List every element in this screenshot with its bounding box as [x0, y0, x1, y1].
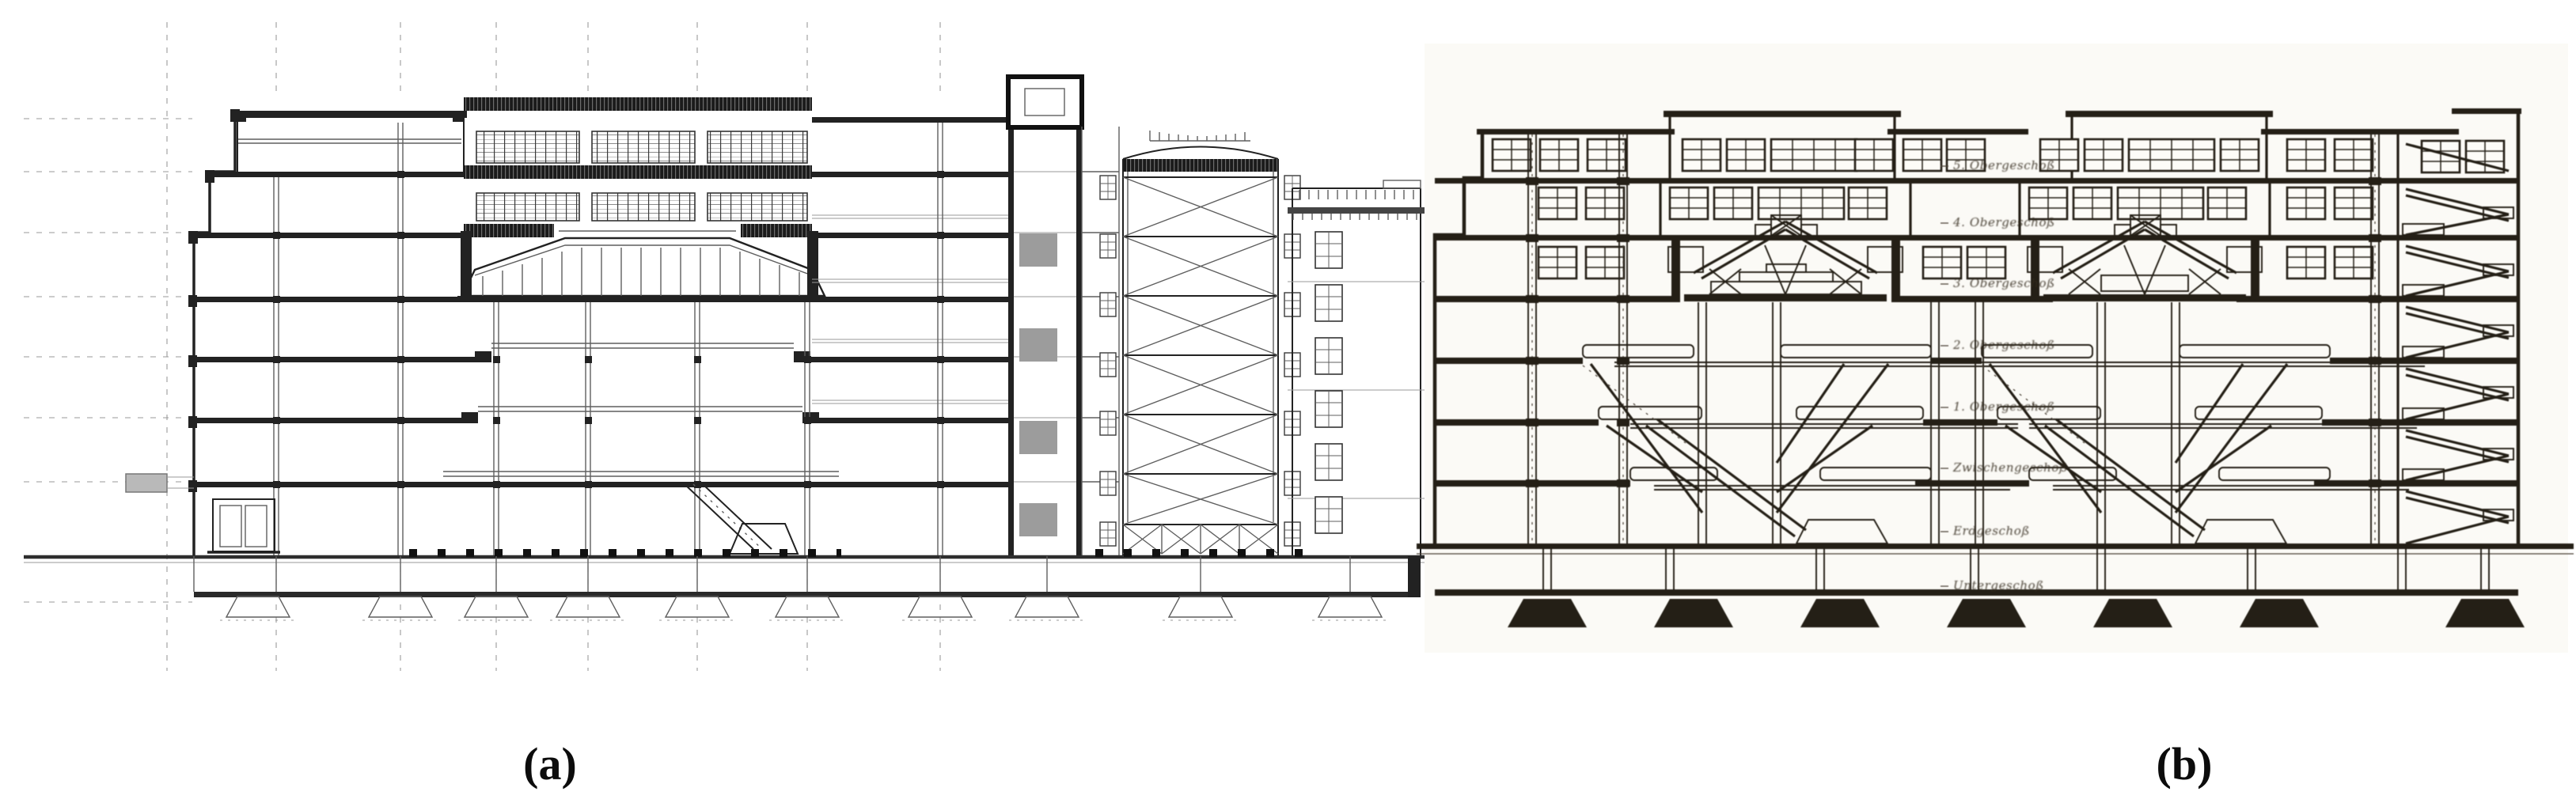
section-drawing-a [24, 22, 1425, 671]
side-canopy-a [126, 474, 194, 492]
floor-label-zg: Zwischengeschoß [1952, 460, 2068, 475]
floor-label-4og: 4. Obergeschoß [1952, 215, 2055, 229]
ground-and-foundations-a [24, 553, 1425, 620]
floor-label-ug: Untergeschoß [1953, 578, 2044, 593]
floor-label-1og: 1. Obergeschoß [1953, 400, 2055, 414]
foundation-pads-a [226, 597, 1382, 617]
floor-label-3og: 3. Obergeschoß [1953, 276, 2055, 290]
floor-label-2og: 2. Obergeschoß [1952, 338, 2055, 352]
panel-b-caption: (b) [2157, 738, 2213, 790]
two-panel-figure: 5. Obergeschoß 4. Obergeschoß 3. Oberges… [0, 0, 2576, 803]
figure-canvas: 5. Obergeschoß 4. Obergeschoß 3. Oberges… [0, 0, 2576, 803]
floor-label-5og: 5. Obergeschoß [1953, 158, 2055, 172]
floor-label-eg: Erdgeschoß [1952, 524, 2030, 538]
panel-a-caption: (a) [523, 738, 577, 790]
